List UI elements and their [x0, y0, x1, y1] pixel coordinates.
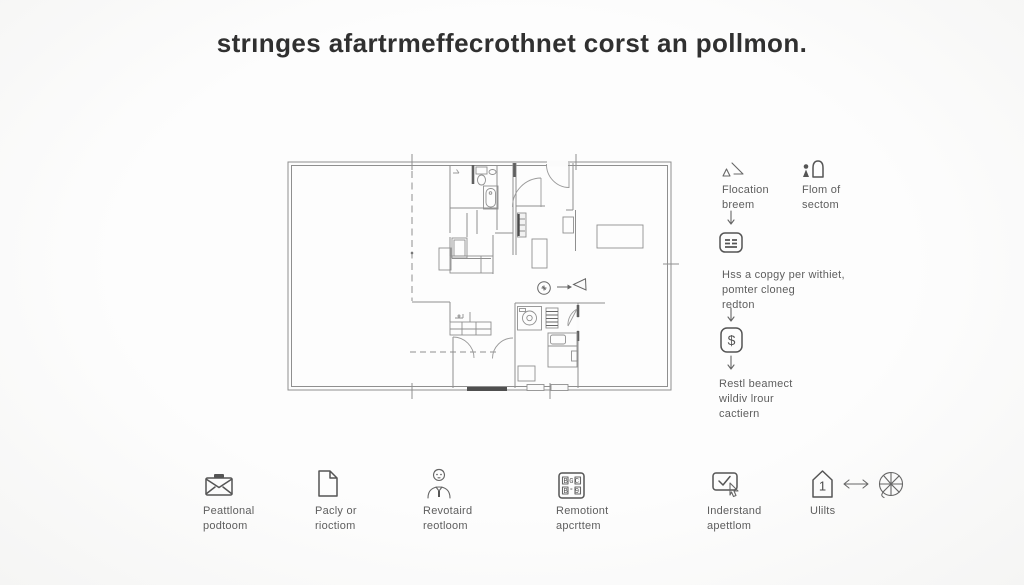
house-number: 1: [819, 479, 826, 494]
legend-label: Peattlonal podtoom: [203, 504, 254, 534]
legend-label: Inderstand apettlom: [707, 504, 761, 534]
bathroom-fixtures: [476, 167, 498, 209]
flag-icon: [574, 279, 587, 290]
keypad-icon: BGC B°9: [558, 472, 585, 499]
legend-label: Ulilts: [810, 504, 835, 519]
page-title: strınges afartrmeffecrothnet corst an po…: [0, 28, 1024, 59]
plan-annotations: [538, 279, 586, 295]
threshold: [467, 387, 507, 391]
flow-branch-label-2: Flom of sectom: [802, 183, 840, 213]
house-number-icon: 1: [809, 469, 836, 499]
arrows-left-right-icon: [841, 478, 871, 490]
envelope-icon: [205, 474, 233, 498]
legend-label: Pacly or rioctiom: [315, 504, 357, 534]
checkbox-cursor-icon: [712, 472, 742, 499]
dollar-icon: $: [720, 327, 743, 353]
laundry-fixtures: [467, 307, 578, 392]
flow-branch-label-1: Flocation breem: [722, 183, 769, 213]
door-mark-icon: [453, 170, 459, 174]
dollar-glyph: $: [728, 332, 736, 348]
utility-panel: [518, 213, 527, 237]
washing-machine-icon: [523, 311, 537, 325]
flow-step-text-2: Restl beamect wildiv lrour cactiern: [719, 377, 879, 422]
document-icon: [317, 470, 339, 498]
kitchen-counter: [450, 312, 491, 335]
furniture: [439, 217, 643, 273]
form-card-icon: [719, 232, 743, 253]
keypad-row-2: B°9: [564, 487, 581, 496]
floor-plan: [280, 148, 680, 400]
down-arrow-icon: [726, 356, 736, 372]
drafting-slope-icon: [720, 158, 746, 180]
wall-ticks: [412, 154, 679, 399]
person-door-icon: [801, 158, 827, 180]
flow-step-text-1: Hss a copgy per withiet, pomter cloneg r…: [722, 268, 882, 313]
wheel-icon: [876, 469, 906, 499]
pointer-arrow-icon: [568, 285, 573, 290]
person-icon: [426, 468, 452, 500]
down-arrow-icon: [726, 211, 736, 227]
down-arrow-icon: [726, 308, 736, 324]
legend-label: Remotiont apcrttem: [556, 504, 608, 534]
legend-label: Revotaird reotloom: [423, 504, 472, 534]
keypad-row-1: BGC: [564, 478, 581, 486]
bed: [548, 333, 577, 367]
interior-walls: [412, 161, 605, 389]
